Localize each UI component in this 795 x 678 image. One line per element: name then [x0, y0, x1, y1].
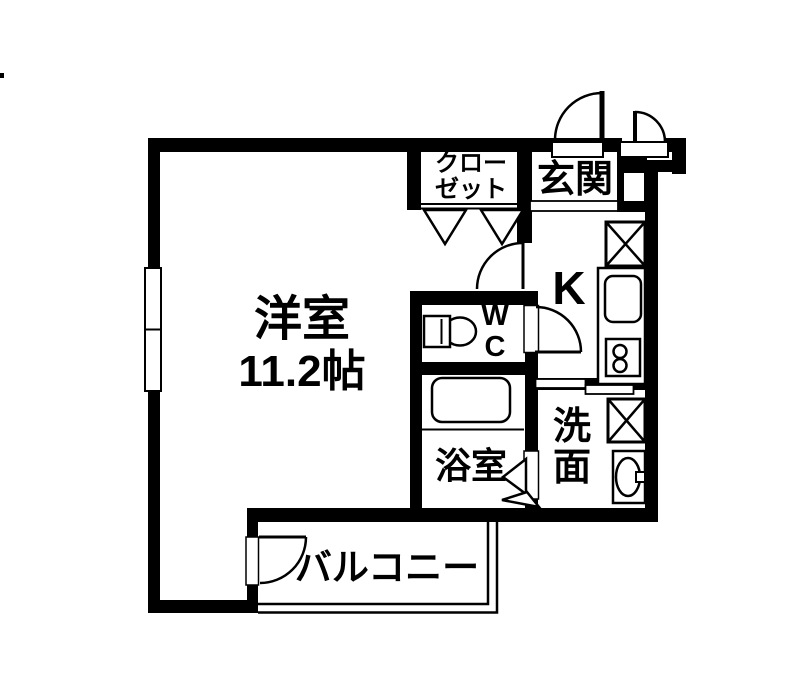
room-label-toilet: W C [474, 301, 516, 363]
bathtub-icon [422, 378, 524, 430]
entrance-door [552, 91, 603, 157]
room-label-entrance: 玄関 [532, 160, 618, 201]
gas-stove-icon [606, 339, 640, 376]
wash-basin-icon [613, 451, 645, 503]
meter-box [623, 172, 645, 202]
floorplan-canvas: 洋室 11.2帖 クロー ゼット 玄関 K W C 浴室 洗 面 バルコニー [0, 0, 795, 678]
entrance-step [530, 201, 618, 211]
kitchen-counter [598, 268, 645, 384]
window [145, 268, 161, 391]
living-room-door [477, 242, 523, 289]
room-label-closet: クロー ゼット [423, 151, 519, 203]
room-label-balcony: バルコニー [288, 548, 486, 588]
washing-machine-space-icon [608, 399, 645, 442]
kitchen-sink-icon [605, 276, 641, 322]
room-label-bathroom: 浴室 [430, 447, 512, 486]
closet-folding-doors [417, 204, 524, 244]
room-label-washroom: 洗 面 [550, 407, 594, 489]
storage-door [620, 111, 668, 157]
room-label-kitchen: K [546, 264, 592, 314]
refrigerator-space-icon [606, 222, 645, 266]
room-label-living: 洋室 [202, 294, 402, 346]
toilet-icon [424, 316, 476, 347]
room-size-living: 11.2帖 [192, 348, 412, 396]
